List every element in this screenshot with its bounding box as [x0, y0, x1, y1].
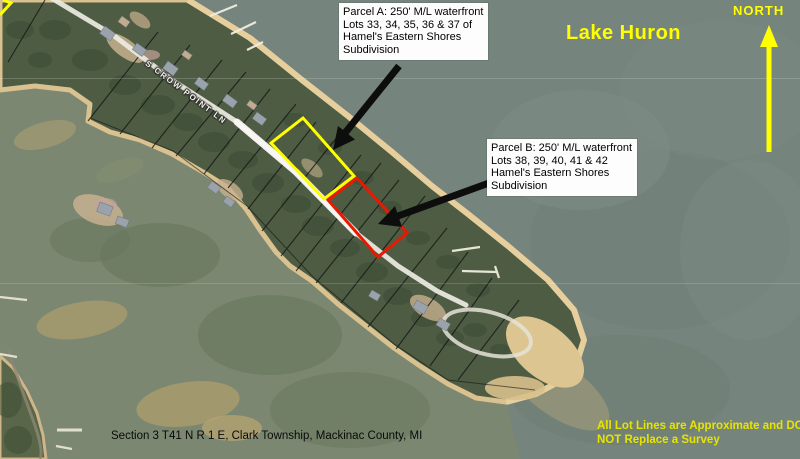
aerial-photo-layer — [0, 0, 800, 459]
parcel-a-line-3: Hamel's Eastern Shores — [343, 31, 483, 44]
section-label: Section 3 T41 N R 1 E, Clark Township, M… — [111, 430, 422, 442]
parcel-a-line-4: Subdivision — [343, 44, 483, 57]
parcel-a-callout: Parcel A: 250' M/L waterfront Lots 33, 3… — [339, 3, 488, 60]
parcel-b-line-3: Hamel's Eastern Shores — [491, 167, 632, 180]
parcel-a-line-2: Lots 33, 34, 35, 36 & 37 of — [343, 19, 483, 32]
parcel-b-line-4: Subdivision — [491, 180, 632, 193]
disclaimer-line-2: NOT Replace a Survey — [597, 434, 800, 448]
disclaimer-line-1: All Lot Lines are Approximate and DO — [597, 420, 800, 434]
north-label: NORTH — [733, 3, 784, 18]
parcel-a-line-1: Parcel A: 250' M/L waterfront — [343, 6, 483, 19]
parcel-b-line-1: Parcel B: 250' M/L waterfront — [491, 142, 632, 155]
parcel-b-line-2: Lots 38, 39, 40, 41 & 42 — [491, 155, 632, 168]
parcel-b-callout: Parcel B: 250' M/L waterfront Lots 38, 3… — [487, 139, 637, 196]
disclaimer-label: All Lot Lines are Approximate and DO NOT… — [597, 420, 800, 447]
lake-huron-label: Lake Huron — [566, 22, 681, 45]
aerial-parcel-map: Parcel A: 250' M/L waterfront Lots 33, 3… — [0, 0, 800, 459]
